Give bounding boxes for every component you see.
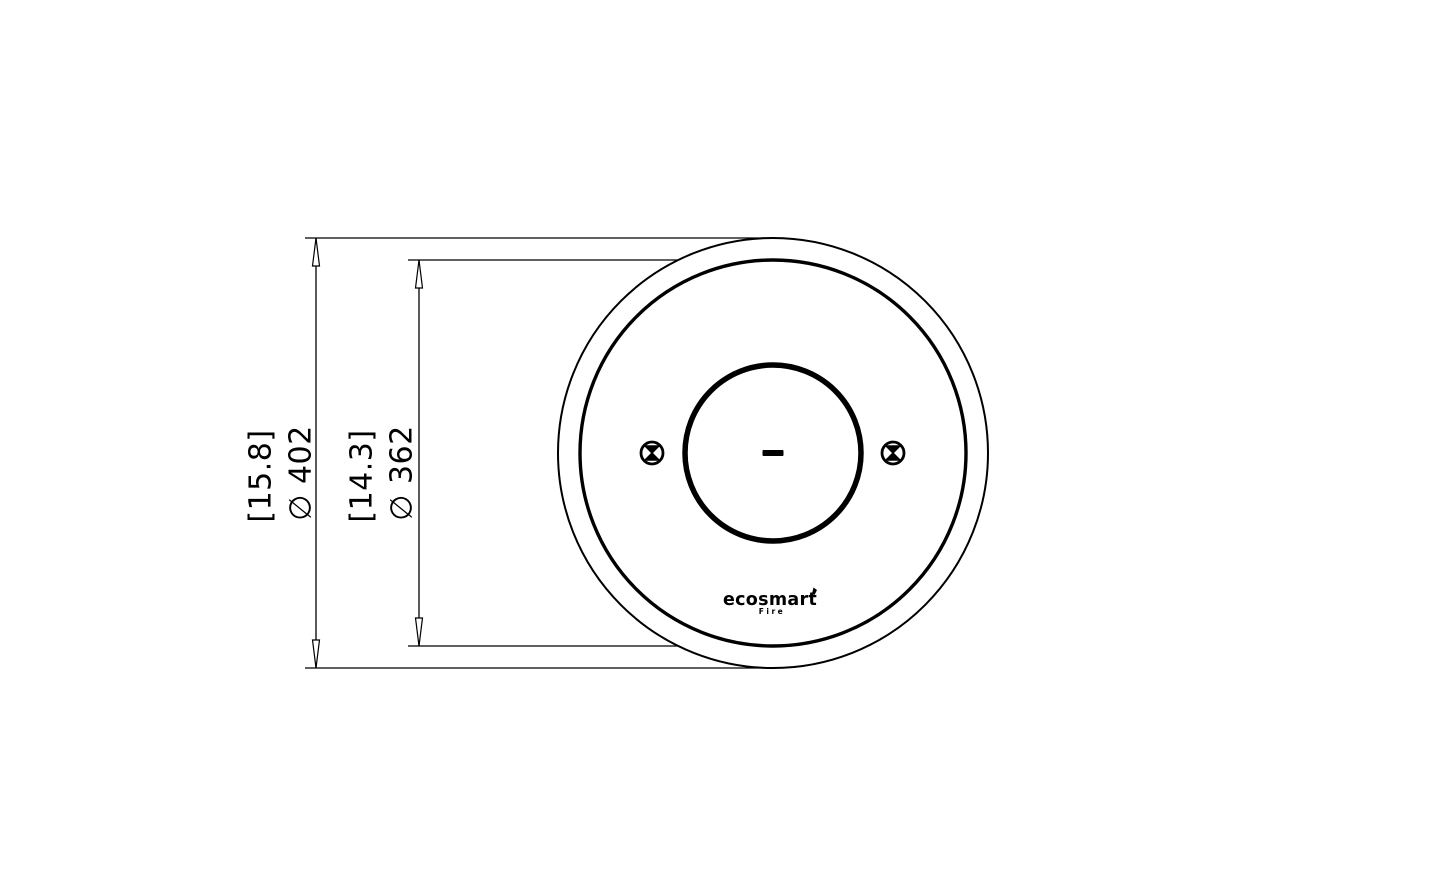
screw-left-icon [641,442,663,464]
brand-logo-sub-text: Fire [759,607,785,616]
arrowhead-inner-top [416,260,423,288]
dimension-inner: [14.3] ∅ 362 [345,260,423,646]
arrowhead-inner-bottom [416,618,423,646]
technical-drawing-canvas: [15.8] ∅ 402 [14.3] ∅ 362 [0,0,1445,893]
dim-label-outer-bracket: [15.8] [244,429,279,522]
dimension-outer: [15.8] ∅ 402 [244,238,320,668]
dim-label-inner-diameter: ∅ 362 [385,425,420,520]
dim-label-inner-bracket: [14.3] [345,429,380,522]
technical-drawing-page: [15.8] ∅ 402 [14.3] ∅ 362 [0,0,1445,893]
center-mark [763,450,784,456]
arrowhead-outer-bottom [313,640,320,668]
screw-right-icon [882,442,904,464]
dim-label-outer-diameter: ∅ 402 [284,425,319,520]
fire-pit-top-view: ecosmart Fire [558,238,988,668]
arrowhead-outer-top [313,238,320,266]
